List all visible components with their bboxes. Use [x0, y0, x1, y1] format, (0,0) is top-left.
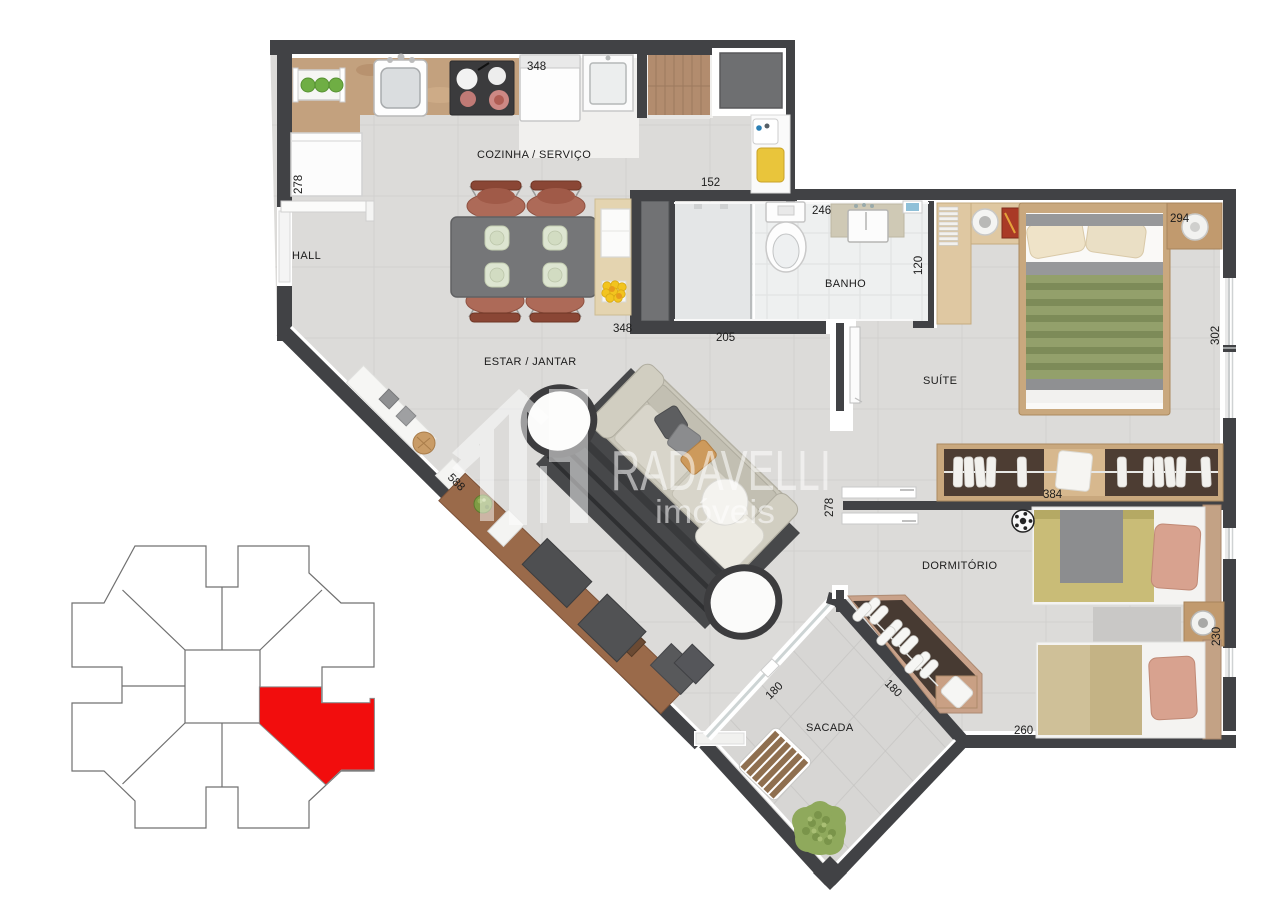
svg-text:302: 302: [1210, 326, 1222, 345]
svg-text:120: 120: [913, 256, 925, 275]
svg-text:HALL: HALL: [292, 250, 321, 262]
svg-text:SACADA: SACADA: [806, 722, 854, 734]
svg-text:384: 384: [1043, 489, 1063, 501]
svg-text:205: 205: [716, 332, 735, 344]
svg-text:260: 260: [1014, 725, 1033, 737]
svg-text:152: 152: [701, 177, 720, 189]
svg-text:278: 278: [293, 175, 305, 194]
svg-text:246: 246: [812, 205, 831, 217]
svg-text:COZINHA / SERVIÇO: COZINHA / SERVIÇO: [477, 149, 591, 161]
svg-text:ESTAR / JANTAR: ESTAR / JANTAR: [484, 356, 577, 368]
svg-text:230: 230: [1211, 627, 1223, 646]
svg-text:294: 294: [1170, 213, 1190, 225]
svg-text:278: 278: [824, 498, 836, 517]
svg-text:348: 348: [613, 323, 632, 335]
svg-text:BANHO: BANHO: [825, 278, 866, 290]
svg-text:SUÍTE: SUÍTE: [923, 374, 957, 387]
svg-text:imóveis: imóveis: [655, 493, 775, 530]
svg-text:DORMITÓRIO: DORMITÓRIO: [922, 559, 998, 572]
svg-text:348: 348: [527, 61, 546, 73]
